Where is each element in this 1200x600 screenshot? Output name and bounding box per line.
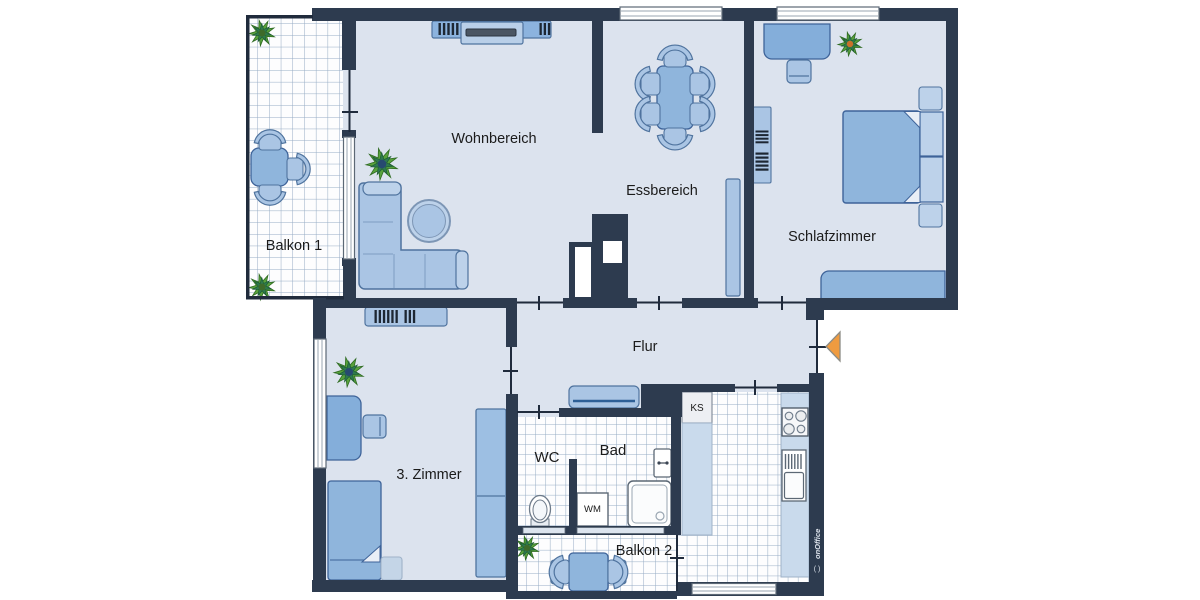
svg-text:WM: WM: [584, 504, 601, 515]
svg-text:3. Zimmer: 3. Zimmer: [396, 467, 461, 483]
svg-text:Schlafzimmer: Schlafzimmer: [788, 229, 876, 245]
svg-text:KS: KS: [690, 403, 704, 414]
svg-text:Balkon 2: Balkon 2: [616, 543, 672, 559]
svg-text:Bad: Bad: [600, 442, 627, 459]
svg-text:( ): ( ): [814, 566, 821, 573]
svg-text:WC: WC: [535, 449, 560, 466]
svg-text:Essbereich: Essbereich: [626, 183, 698, 199]
svg-text:onOffice: onOffice: [813, 529, 822, 559]
svg-text:Balkon 1: Balkon 1: [266, 238, 322, 254]
svg-text:Flur: Flur: [633, 339, 658, 355]
svg-text:Wohnbereich: Wohnbereich: [451, 131, 536, 147]
